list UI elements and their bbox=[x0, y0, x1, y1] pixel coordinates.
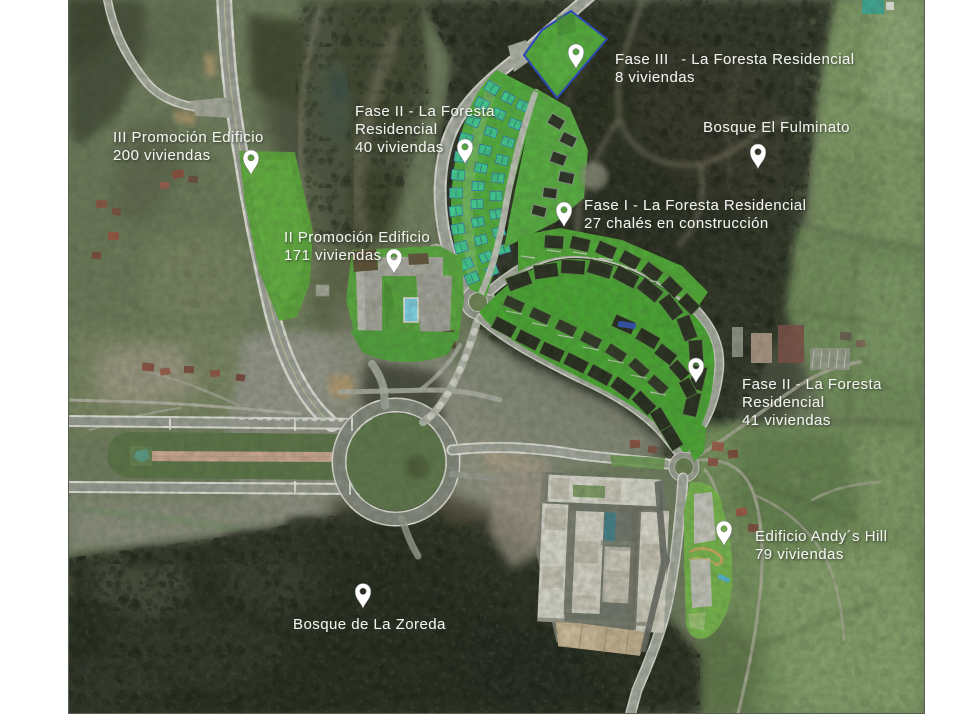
svg-text:Fase II - La Foresta: Fase II - La Foresta bbox=[742, 376, 882, 393]
svg-text:Fase III - La Foresta Residen: Fase III - La Foresta Residencial bbox=[615, 51, 855, 68]
svg-text:41 viviendas: 41 viviendas bbox=[742, 412, 831, 429]
svg-text:40 viviendas: 40 viviendas bbox=[355, 139, 444, 156]
svg-text:Residencial: Residencial bbox=[355, 121, 438, 138]
svg-text:27 chalés en construcción: 27 chalés en construcción bbox=[584, 215, 769, 232]
svg-text:Bosque de La Zoreda: Bosque de La Zoreda bbox=[293, 616, 446, 633]
svg-text:Fase I - La Foresta Residencia: Fase I - La Foresta Residencial bbox=[584, 197, 806, 214]
svg-text:200 viviendas: 200 viviendas bbox=[113, 147, 211, 164]
svg-text:8 viviendas: 8 viviendas bbox=[615, 69, 695, 86]
svg-text:III Promoción Edificio: III Promoción Edificio bbox=[113, 129, 264, 146]
svg-text:Residencial: Residencial bbox=[742, 394, 825, 411]
svg-text:Edificio Andy´s Hill: Edificio Andy´s Hill bbox=[755, 528, 887, 545]
svg-text:Fase II - La Foresta: Fase II - La Foresta bbox=[355, 103, 495, 120]
svg-text:Bosque El Fulminato: Bosque El Fulminato bbox=[703, 119, 850, 136]
svg-text:II Promoción Edificio: II Promoción Edificio bbox=[284, 229, 430, 246]
svg-text:171 viviendas: 171 viviendas bbox=[284, 247, 382, 264]
svg-text:79 viviendas: 79 viviendas bbox=[755, 546, 844, 563]
